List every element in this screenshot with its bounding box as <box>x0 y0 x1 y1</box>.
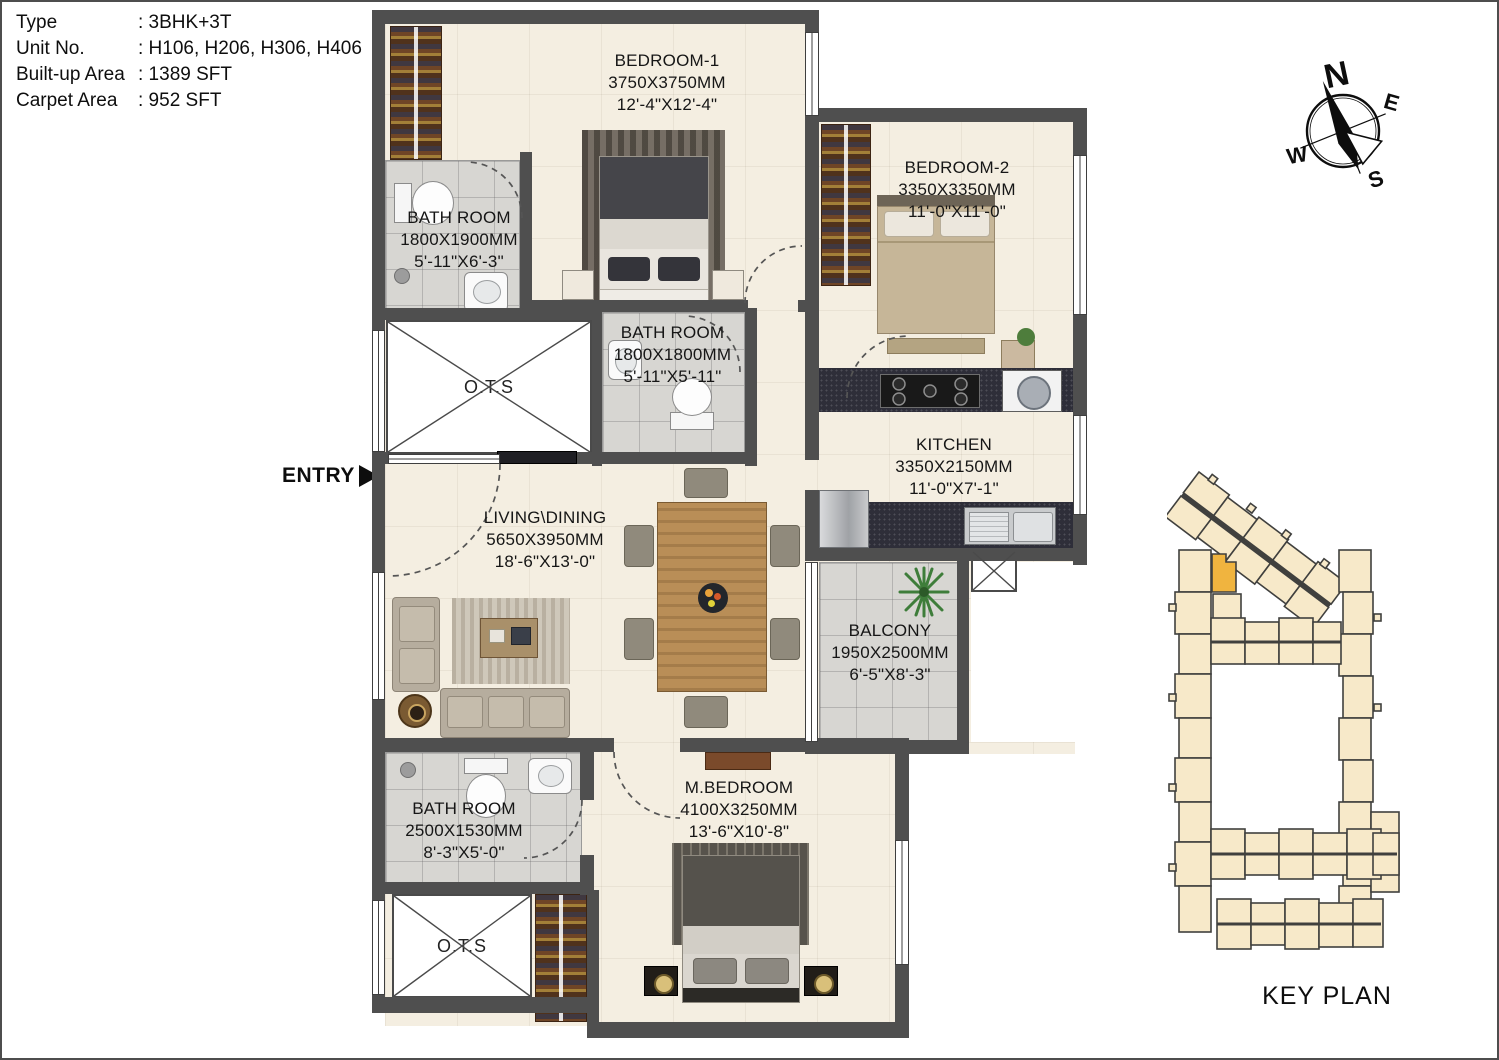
bedroom1-bed <box>599 156 709 308</box>
key-plan <box>1167 454 1447 964</box>
mbedroom-dresser <box>705 752 771 770</box>
room-name: BALCONY <box>815 620 965 642</box>
bedroom2-bench <box>887 338 985 354</box>
room-dim-ft: 11'-0"X11'-0" <box>867 201 1047 223</box>
bedroom2-label: BEDROOM-2 3350X3350MM 11'-0"X11'-0" <box>867 157 1047 223</box>
room-name: BATH ROOM <box>384 207 534 229</box>
balcony-plant-icon <box>896 564 952 620</box>
bedroom1-nightstand <box>562 270 594 300</box>
info-label: Carpet Area <box>16 88 138 114</box>
wall-segment <box>372 10 819 24</box>
room-dim-mm: 3350X2150MM <box>864 456 1044 478</box>
room-name: LIVING\DINING <box>450 507 640 529</box>
entry-door-leaf <box>388 454 500 464</box>
floor-plan: O.T.S O.T.S <box>372 10 1087 1048</box>
room-name: BEDROOM-2 <box>867 157 1047 179</box>
info-value: : H106, H206, H306, H406 <box>138 36 362 62</box>
washing-machine <box>1002 370 1062 412</box>
bedroom2-plant <box>1017 328 1035 346</box>
room-name: KITCHEN <box>864 434 1044 456</box>
bedroom1-label: BEDROOM-1 3750X3750MM 12'-4"X12'-4" <box>577 50 757 116</box>
tv-unit <box>497 451 577 464</box>
mbedroom-bed <box>682 855 800 1003</box>
refrigerator <box>819 490 869 548</box>
entry-label: ENTRY <box>282 464 379 488</box>
wall-segment <box>680 738 909 752</box>
dining-chair <box>684 468 728 498</box>
wall-segment <box>805 110 819 460</box>
dining-table <box>657 502 767 692</box>
room-dim-mm: 2500X1530MM <box>384 820 544 842</box>
window <box>895 840 909 965</box>
balcony-label: BALCONY 1950X2500MM 6'-5"X8'-3" <box>815 620 965 686</box>
wall-segment <box>805 490 819 550</box>
compass-rose-icon: N E W S <box>1285 57 1405 189</box>
wall-segment <box>372 10 388 22</box>
window <box>1073 415 1087 515</box>
room-dim-mm: 1800X1900MM <box>384 229 534 251</box>
sofa-single <box>392 597 440 692</box>
ots-shaft-top: O.T.S <box>386 320 592 454</box>
info-value: : 952 SFT <box>138 88 221 114</box>
side-table-round <box>398 694 432 728</box>
floorplan-page: Type : 3BHK+3T Unit No. : H106, H206, H3… <box>0 0 1499 1060</box>
mbedroom-nightstand <box>804 966 838 996</box>
room-dim-ft: 6'-5"X8'-3" <box>815 664 965 686</box>
wash-basin <box>464 272 508 312</box>
kitchen-sink <box>964 507 1056 545</box>
room-name: BATH ROOM <box>384 798 544 820</box>
wall-segment <box>805 108 1087 122</box>
room-dim-ft: 8'-3"X5'-0" <box>384 842 544 864</box>
room-dim-ft: 13'-6"X10'-8" <box>649 821 829 843</box>
window <box>372 900 385 995</box>
dining-chair <box>770 618 800 660</box>
bedroom1-nightstand <box>712 270 744 300</box>
room-dim-mm: 3350X3350MM <box>867 179 1047 201</box>
bathroom2-label: BATH ROOM 1800X1800MM 5'-11"X5'-11" <box>590 322 755 388</box>
info-row-type: Type : 3BHK+3T <box>16 10 362 36</box>
wall-segment <box>580 855 594 895</box>
room-name: M.BEDROOM <box>649 777 829 799</box>
room-dim-mm: 5650X3950MM <box>450 529 640 551</box>
wall-segment <box>372 738 594 752</box>
room-dim-ft: 12'-4"X12'-4" <box>577 94 757 116</box>
window <box>1073 155 1087 315</box>
room-dim-mm: 1800X1800MM <box>590 344 755 366</box>
key-plan-title: KEY PLAN <box>1217 982 1437 1011</box>
wall-segment <box>587 890 599 1030</box>
info-value: : 1389 SFT <box>138 62 232 88</box>
wall-segment <box>587 1022 909 1038</box>
dining-chair <box>684 696 728 728</box>
kitchen-hob <box>880 374 980 408</box>
bedroom2-bed <box>877 206 995 334</box>
window <box>805 32 819 116</box>
wall-segment <box>805 548 1087 561</box>
bedroom1-wardrobe <box>390 26 442 160</box>
bathroom1-label: BATH ROOM 1800X1900MM 5'-11"X6'-3" <box>384 207 534 273</box>
outside-area <box>909 754 1087 1048</box>
room-dim-ft: 5'-11"X5'-11" <box>590 366 755 388</box>
room-dim-mm: 4100X3250MM <box>649 799 829 821</box>
bathroom3-label: BATH ROOM 2500X1530MM 8'-3"X5'-0" <box>384 798 544 864</box>
ots-shaft-bottom: O.T.S <box>392 894 532 998</box>
wall-segment <box>380 882 592 894</box>
ots-bottom-label: O.T.S <box>434 936 490 957</box>
info-row-builtup: Built-up Area : 1389 SFT <box>16 62 362 88</box>
hob-burners-icon <box>881 375 979 407</box>
kitchen-label: KITCHEN 3350X2150MM 11'-0"X7'-1" <box>864 434 1044 500</box>
bedroom2-wardrobe <box>821 124 871 286</box>
dining-chair <box>770 525 800 567</box>
window <box>372 572 385 700</box>
info-label: Built-up Area <box>16 62 138 88</box>
living-dining-label: LIVING\DINING 5650X3950MM 18'-6"X13'-0" <box>450 507 640 573</box>
room-name: BEDROOM-1 <box>577 50 757 72</box>
info-row-carpet: Carpet Area : 952 SFT <box>16 88 362 114</box>
coffee-table <box>480 618 538 658</box>
mbedroom-label: M.BEDROOM 4100X3250MM 13'-6"X10'-8" <box>649 777 829 843</box>
room-dim-ft: 5'-11"X6'-3" <box>384 251 534 273</box>
wash-basin <box>528 758 572 794</box>
room-dim-mm: 3750X3750MM <box>577 72 757 94</box>
svg-text:W: W <box>1285 141 1310 169</box>
wall-segment <box>520 300 748 312</box>
mbedroom-nightstand <box>644 966 678 996</box>
wall-segment <box>592 738 614 752</box>
dining-chair <box>624 618 654 660</box>
shower-drain <box>400 762 416 778</box>
sofa-main <box>440 688 570 738</box>
info-value: : 3BHK+3T <box>138 10 231 36</box>
wall-segment <box>372 997 598 1013</box>
toilet-tank <box>464 758 508 774</box>
room-dim-ft: 11'-0"X7'-1" <box>864 478 1044 500</box>
unit-info-block: Type : 3BHK+3T Unit No. : H106, H206, H3… <box>16 10 362 114</box>
room-name: BATH ROOM <box>590 322 755 344</box>
info-label: Unit No. <box>16 36 138 62</box>
svg-text:S: S <box>1365 165 1387 189</box>
room-dim-ft: 18'-6"X13'-0" <box>450 551 640 573</box>
svg-text:E: E <box>1381 88 1402 116</box>
window <box>372 330 385 452</box>
outside-area <box>819 10 1087 108</box>
info-label: Type <box>16 10 138 36</box>
wall-segment <box>372 452 388 464</box>
info-row-unitno: Unit No. : H106, H206, H306, H406 <box>16 36 362 62</box>
room-dim-mm: 1950X2500MM <box>815 642 965 664</box>
ots-top-label: O.T.S <box>461 377 517 398</box>
wall-segment <box>580 738 594 800</box>
entry-text: ENTRY <box>282 464 355 488</box>
